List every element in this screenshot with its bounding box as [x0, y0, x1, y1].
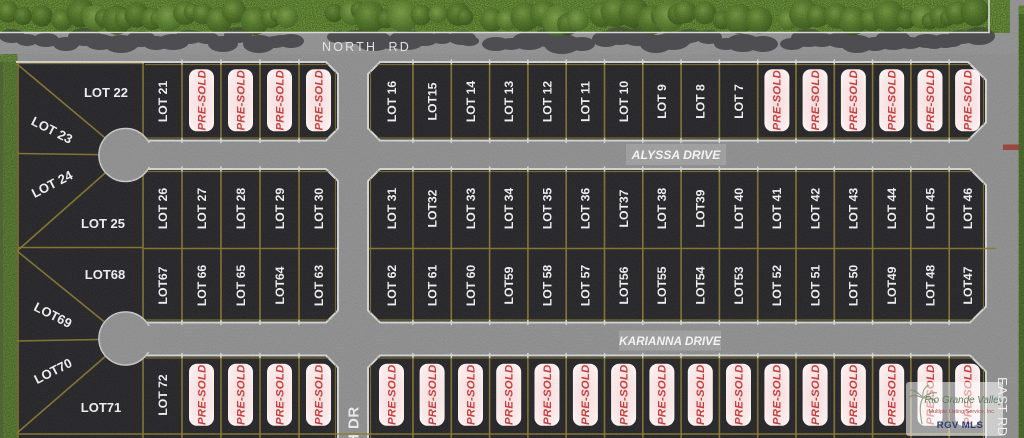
svg-text:LOT56: LOT56	[617, 266, 631, 304]
svg-text:LOT 65: LOT 65	[234, 265, 248, 307]
svg-text:LOT 21: LOT 21	[156, 81, 170, 123]
svg-text:PRE-SOLD: PRE-SOLD	[887, 70, 899, 130]
svg-text:LOT 50: LOT 50	[847, 265, 861, 307]
svg-text:LOT32: LOT32	[425, 189, 439, 227]
svg-text:PRE-SOLD: PRE-SOLD	[733, 365, 745, 425]
svg-text:PRE-SOLD: PRE-SOLD	[386, 365, 398, 425]
svg-text:PRE-SOLD: PRE-SOLD	[274, 365, 286, 425]
svg-text:PRE-SOLD: PRE-SOLD	[313, 365, 325, 425]
svg-text:LOT 46: LOT 46	[961, 188, 975, 230]
svg-text:LOT 30: LOT 30	[312, 188, 326, 230]
svg-text:PRE-SOLD: PRE-SOLD	[235, 70, 247, 130]
svg-text:PRE-SOLD: PRE-SOLD	[657, 365, 669, 425]
svg-text:LOT 41: LOT 41	[770, 188, 784, 230]
svg-text:LOT 44: LOT 44	[885, 188, 899, 230]
svg-text:PRE-SOLD: PRE-SOLD	[274, 70, 286, 130]
svg-text:LOT 72: LOT 72	[156, 374, 170, 416]
svg-text:PRE-SOLD: PRE-SOLD	[196, 365, 208, 425]
svg-text:LOT 40: LOT 40	[732, 188, 746, 230]
svg-text:PRE-SOLD: PRE-SOLD	[925, 70, 937, 130]
svg-text:PRE-SOLD: PRE-SOLD	[427, 365, 439, 425]
svg-text:LOT64: LOT64	[273, 266, 287, 304]
svg-text:LOT 34: LOT 34	[502, 188, 516, 230]
svg-text:PRE-SOLD: PRE-SOLD	[465, 365, 477, 425]
svg-text:PRE-SOLD: PRE-SOLD	[580, 365, 592, 425]
svg-text:LOT47: LOT47	[961, 266, 975, 304]
svg-text:LOT67: LOT67	[156, 266, 170, 304]
svg-text:RGV MLS: RGV MLS	[937, 420, 984, 431]
svg-text:LOT 25: LOT 25	[81, 216, 125, 231]
svg-text:LOT15: LOT15	[425, 82, 439, 120]
svg-text:PRE-SOLD: PRE-SOLD	[962, 70, 974, 130]
svg-text:LOT 33: LOT 33	[464, 188, 478, 230]
svg-text:LOT 7: LOT 7	[732, 84, 746, 119]
svg-text:LOT55: LOT55	[655, 266, 669, 304]
svg-text:LOT 36: LOT 36	[579, 188, 593, 230]
svg-text:LOT 45: LOT 45	[923, 188, 937, 230]
svg-text:LOT71: LOT71	[81, 400, 121, 415]
svg-text:PRE-SOLD: PRE-SOLD	[196, 70, 208, 130]
svg-text:LOT 22: LOT 22	[84, 85, 128, 100]
svg-text:PRE-SOLD: PRE-SOLD	[810, 365, 822, 425]
svg-text:LOT 38: LOT 38	[655, 188, 669, 230]
svg-text:LOT 62: LOT 62	[385, 265, 399, 307]
svg-text:PRE-SOLD: PRE-SOLD	[848, 70, 860, 130]
svg-text:NORTH RD: NORTH RD	[322, 40, 411, 54]
svg-text:LOT 11: LOT 11	[579, 81, 593, 122]
svg-text:LOT 10: LOT 10	[617, 81, 631, 123]
svg-text:LOT 58: LOT 58	[540, 265, 554, 307]
svg-text:Rio Grande Valley: Rio Grande Valley	[924, 395, 1004, 406]
svg-text:LOT 63: LOT 63	[312, 265, 326, 307]
svg-text:LOT53: LOT53	[732, 266, 746, 304]
svg-text:LOT 8: LOT 8	[694, 84, 708, 119]
svg-text:LOT54: LOT54	[694, 266, 708, 304]
svg-text:LOT 35: LOT 35	[540, 188, 554, 230]
svg-text:LOT 66: LOT 66	[195, 265, 209, 307]
svg-text:LOT 12: LOT 12	[540, 81, 554, 123]
svg-text:PRE-SOLD: PRE-SOLD	[810, 70, 822, 130]
svg-text:PRE-SOLD: PRE-SOLD	[235, 365, 247, 425]
svg-text:PRE-SOLD: PRE-SOLD	[542, 365, 554, 425]
svg-text:PRE-SOLD: PRE-SOLD	[618, 365, 630, 425]
svg-text:LOT 31: LOT 31	[385, 188, 399, 230]
svg-text:LOT 9: LOT 9	[655, 84, 669, 119]
svg-text:LOT 51: LOT 51	[808, 265, 822, 307]
svg-text:LOT 48: LOT 48	[923, 265, 937, 307]
svg-text:ALYSSA DRIVE: ALYSSA DRIVE	[631, 148, 722, 162]
svg-text:PRE-SOLD: PRE-SOLD	[848, 365, 860, 425]
svg-text:LOT 27: LOT 27	[195, 188, 209, 230]
svg-text:KARIANNA DRIVE: KARIANNA DRIVE	[619, 334, 722, 348]
svg-text:LOT 57: LOT 57	[579, 265, 593, 307]
svg-text:LOT 28: LOT 28	[234, 188, 248, 230]
svg-text:LOT37: LOT37	[617, 189, 631, 227]
svg-text:Multiple Listing Service, Inc.: Multiple Listing Service, Inc.	[929, 409, 996, 415]
svg-text:LOT68: LOT68	[85, 267, 125, 282]
svg-text:LOT 60: LOT 60	[464, 265, 478, 307]
svg-text:LOT 29: LOT 29	[273, 188, 287, 230]
svg-text:PRE-SOLD: PRE-SOLD	[887, 365, 899, 425]
svg-text:LOT 61: LOT 61	[425, 265, 439, 307]
svg-text:PRE-SOLD: PRE-SOLD	[772, 70, 784, 130]
svg-text:LOT 42: LOT 42	[808, 188, 822, 230]
svg-text:PRE-SOLD: PRE-SOLD	[695, 365, 707, 425]
svg-text:LOT39: LOT39	[694, 189, 708, 227]
svg-text:LOT49: LOT49	[885, 266, 899, 304]
svg-text:LOT59: LOT59	[502, 266, 516, 304]
svg-text:LOT 16: LOT 16	[385, 81, 399, 123]
svg-text:LOT 14: LOT 14	[464, 81, 478, 123]
svg-text:LOT 52: LOT 52	[770, 265, 784, 307]
svg-text:EAST RD: EAST RD	[995, 377, 1010, 437]
svg-text:H DR: H DR	[346, 406, 363, 438]
svg-text:PRE-SOLD: PRE-SOLD	[313, 70, 325, 130]
svg-text:LOT 26: LOT 26	[156, 188, 170, 230]
svg-text:LOT 13: LOT 13	[502, 81, 516, 123]
svg-text:LOT 43: LOT 43	[847, 188, 861, 230]
svg-text:PRE-SOLD: PRE-SOLD	[504, 365, 516, 425]
svg-text:PRE-SOLD: PRE-SOLD	[772, 365, 784, 425]
